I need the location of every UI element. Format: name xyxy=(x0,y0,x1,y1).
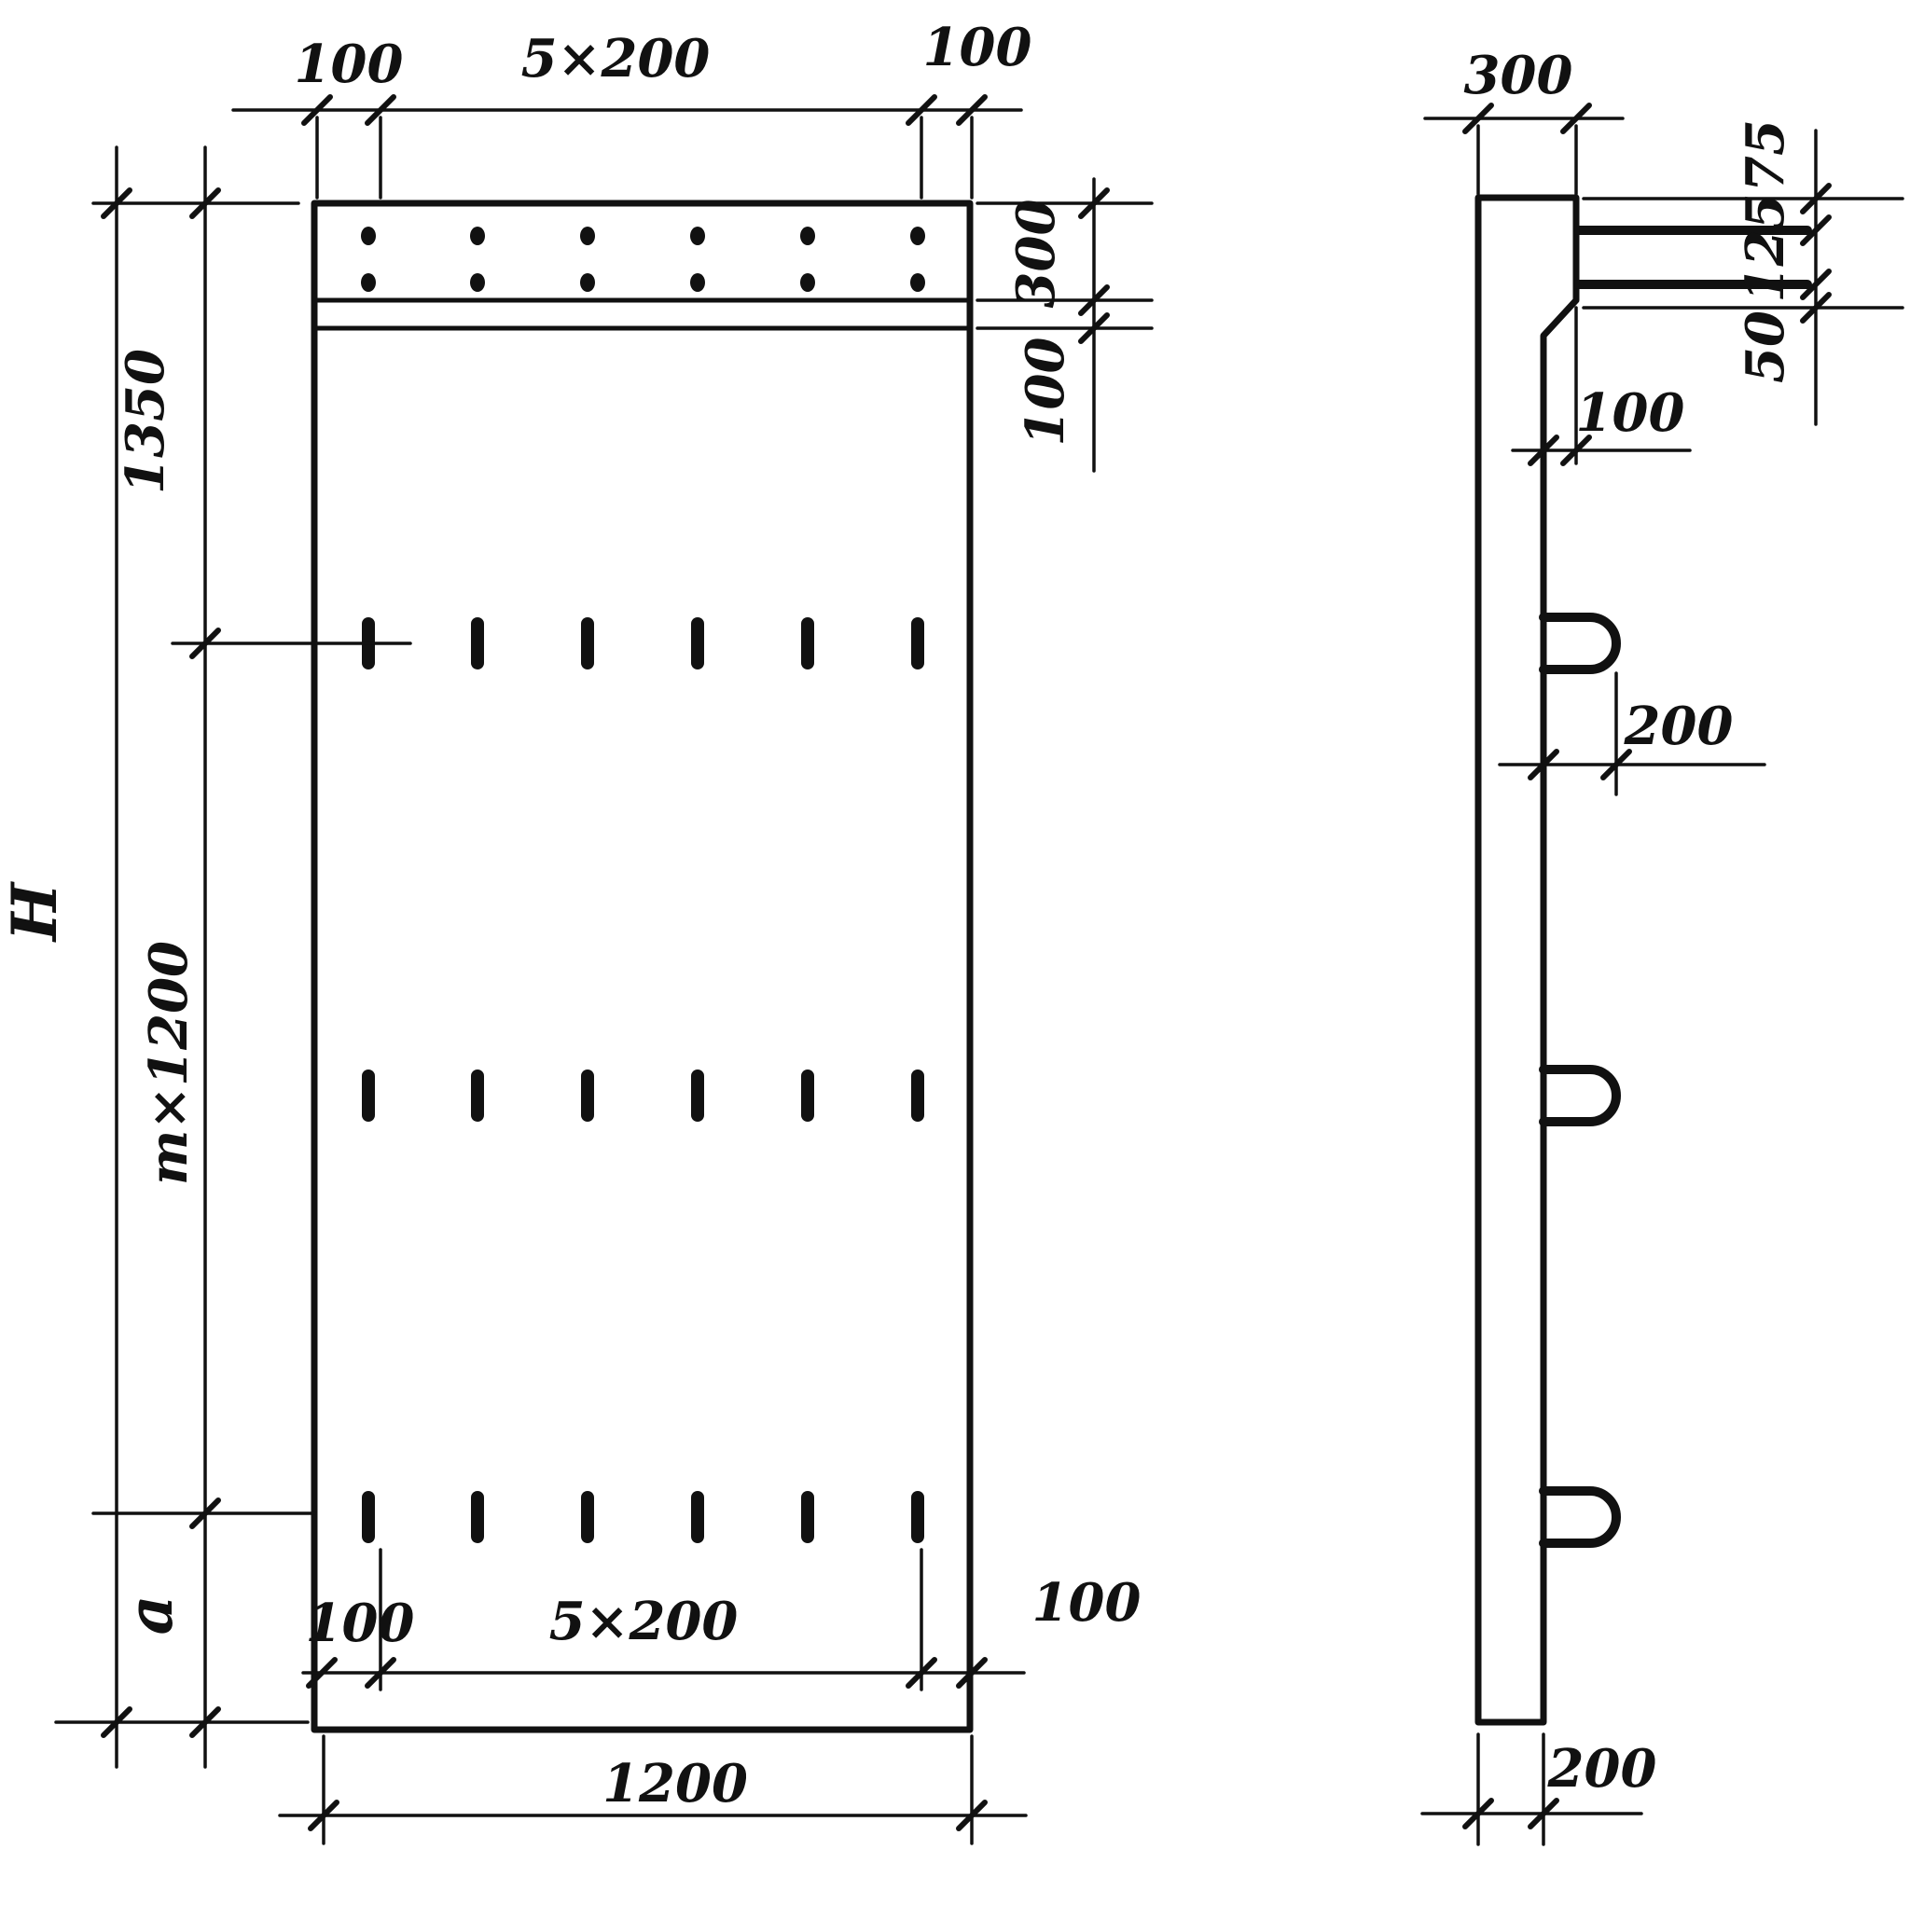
dim-label-front-1200: 1200 xyxy=(602,1753,748,1815)
anchor-dot-grid xyxy=(361,227,925,292)
anchor-dot xyxy=(361,227,376,245)
drawing-sheet: 100 5×200 100 300 100 1350 H m×1200 a 10… xyxy=(0,0,1910,1932)
front-view xyxy=(314,203,970,1730)
dim-label-front-m1200: m×1200 xyxy=(138,941,200,1185)
anchor-dot xyxy=(910,273,925,292)
anchor-dash xyxy=(691,1491,704,1543)
lifting-loop xyxy=(1543,617,1616,669)
anchor-dash xyxy=(691,617,704,669)
anchor-dash xyxy=(471,1491,484,1543)
anchor-dash xyxy=(362,1491,375,1543)
anchor-dot xyxy=(470,273,485,292)
dim-label-front-top-left: 100 xyxy=(295,34,404,95)
anchor-dash xyxy=(362,1069,375,1122)
dimension-lines xyxy=(56,110,1903,1844)
anchor-dash xyxy=(581,1069,594,1122)
dim-label-side-50: 50 xyxy=(1735,310,1796,383)
dimension-labels: 100 5×200 100 300 100 1350 H m×1200 a 10… xyxy=(0,17,1796,1815)
anchor-dash xyxy=(471,1069,484,1122)
anchor-dot xyxy=(800,273,815,292)
anchor-dash xyxy=(801,1069,814,1122)
anchor-dot xyxy=(690,273,705,292)
dim-label-front-1350: 1350 xyxy=(115,349,176,494)
dim-label-side-loop-200: 200 xyxy=(1624,696,1734,757)
anchor-dash xyxy=(911,1069,924,1122)
anchor-dash xyxy=(581,617,594,669)
dim-label-front-top-right: 100 xyxy=(923,17,1032,78)
dim-label-side-300: 300 xyxy=(1464,45,1573,106)
dim-label-side-step-100: 100 xyxy=(1576,382,1685,444)
dim-label-side-75: 75 xyxy=(1735,119,1796,192)
anchor-dash xyxy=(691,1069,704,1122)
dimension-ticks xyxy=(104,97,1829,1828)
anchor-dot xyxy=(470,227,485,245)
anchor-dot xyxy=(580,273,595,292)
lifting-loop xyxy=(1543,1491,1616,1543)
dim-label-side-bottom-200: 200 xyxy=(1547,1738,1657,1800)
dim-label-front-bottom-right: 100 xyxy=(1032,1572,1142,1634)
anchor-dash xyxy=(471,617,484,669)
anchor-dash xyxy=(801,1491,814,1543)
technical-drawing: 100 5×200 100 300 100 1350 H m×1200 a 10… xyxy=(0,0,1910,1932)
dim-label-front-a: a xyxy=(114,1595,187,1635)
anchor-dash xyxy=(911,1491,924,1543)
anchor-dash xyxy=(911,617,924,669)
dim-label-front-strip-100: 100 xyxy=(1015,338,1076,447)
dim-label-side-125: 125 xyxy=(1735,194,1796,303)
panel-outline xyxy=(314,203,970,1730)
anchor-dot xyxy=(361,273,376,292)
anchor-dot xyxy=(800,227,815,245)
anchor-dot xyxy=(910,227,925,245)
lifting-loop xyxy=(1543,1069,1616,1122)
dim-label-front-band-300: 300 xyxy=(1005,200,1067,309)
dim-label-front-top-middle: 5×200 xyxy=(521,28,711,90)
anchor-dash xyxy=(581,1491,594,1543)
anchor-dot xyxy=(580,227,595,245)
anchor-dash xyxy=(801,617,814,669)
dim-label-front-bottom-middle: 5×200 xyxy=(549,1591,739,1652)
dim-label-front-H: H xyxy=(0,880,71,943)
anchor-dot xyxy=(690,227,705,245)
anchor-dash-grid xyxy=(362,617,924,1543)
dim-label-front-bottom-left: 100 xyxy=(306,1593,415,1654)
